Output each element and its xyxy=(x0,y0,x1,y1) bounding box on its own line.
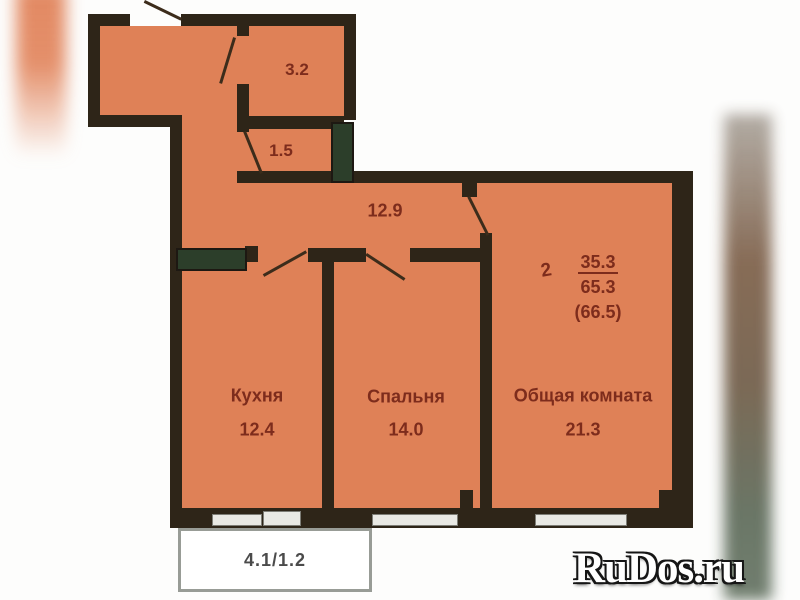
hallway-area-label: 12.9 xyxy=(367,201,402,222)
wall-closet-bath-separator xyxy=(243,116,344,129)
wall-hall-wardrobe-block xyxy=(176,248,247,271)
kitchen-area-label: 12.4 xyxy=(239,420,274,441)
living-room-window xyxy=(535,514,627,526)
bedroom-window xyxy=(372,514,458,526)
balcony-area-label: 4.1/1.2 xyxy=(244,550,306,571)
wall-window-pier-bedroom xyxy=(460,490,473,508)
wall-kitchen-bedroom-separator xyxy=(322,262,334,508)
summary-living-area: 35.3 xyxy=(578,252,617,274)
rudos-watermark: RuDos.ru xyxy=(574,544,794,593)
kitchen-name-label: Кухня xyxy=(231,386,284,407)
living-area-label: 21.3 xyxy=(565,420,600,441)
right-edge-blur-artifact xyxy=(724,114,772,600)
floor-plan-photo: 4.1/1.2 3.2 1.5 12.9 Кухня 12.4 Спальня … xyxy=(0,0,800,600)
summary-total-with-balcony: (66.5) xyxy=(556,300,640,325)
summary-areas-block: 35.3 65.3 (66.5) xyxy=(556,250,640,325)
wall-entry-hall-bottom xyxy=(88,115,181,127)
wall-top-outer xyxy=(88,14,356,26)
wall-main-top xyxy=(237,171,693,183)
living-name-label: Общая комната xyxy=(514,386,653,407)
wall-hall-mid-segment xyxy=(308,248,366,262)
left-edge-blur-artifact xyxy=(16,0,66,158)
room-fill-main-body xyxy=(177,171,672,512)
kitchen-window xyxy=(212,514,262,526)
wall-closet-door-jamb-top xyxy=(237,26,249,36)
summary-total-area: 65.3 xyxy=(556,275,640,300)
wall-vent-shaft xyxy=(331,122,354,183)
bedroom-area-label: 14.0 xyxy=(388,420,423,441)
wall-right-outer xyxy=(672,171,693,528)
wall-left-upper xyxy=(88,14,100,127)
closet-area-label: 3.2 xyxy=(285,60,309,80)
bath-area-label: 1.5 xyxy=(269,141,293,161)
wall-bedroom-living-separator xyxy=(480,233,492,508)
wall-closet-right xyxy=(344,14,356,120)
wall-left-outer xyxy=(170,115,182,528)
balcony: 4.1/1.2 xyxy=(178,528,372,592)
bedroom-name-label: Спальня xyxy=(367,387,445,408)
kitchen-balcony-door xyxy=(263,511,301,526)
wall-window-pier-living xyxy=(659,490,672,508)
